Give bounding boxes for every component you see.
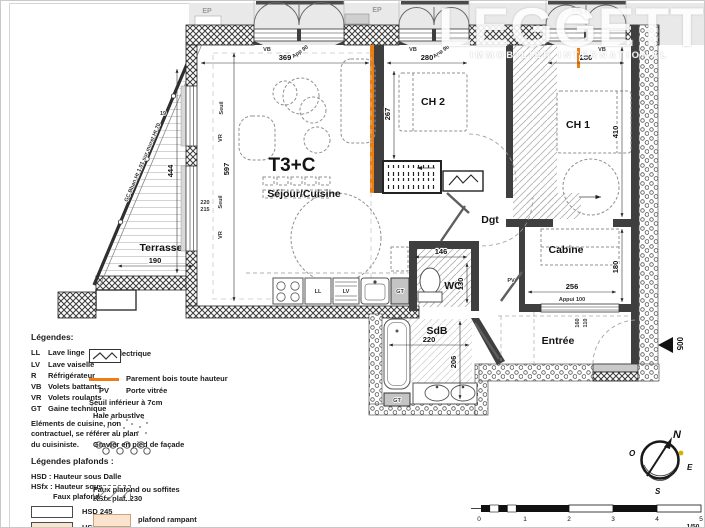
legend-item-lv: LVLave vaiselle bbox=[31, 359, 287, 370]
ep-box bbox=[345, 14, 369, 24]
lv-label: LV bbox=[343, 289, 350, 295]
hsd245-swatch bbox=[31, 506, 73, 518]
scale-tick: 2 bbox=[567, 516, 571, 523]
legend-rampant: plafond rampant bbox=[93, 514, 197, 527]
dim-sill-c: 19 bbox=[160, 111, 166, 117]
hsd243-swatch bbox=[31, 522, 73, 528]
vb-label: VB bbox=[598, 47, 606, 53]
pv-label: PV bbox=[507, 278, 515, 284]
ep-box bbox=[563, 14, 589, 24]
faux-plafond-icon bbox=[93, 485, 131, 501]
dim-sdb-h: 206 bbox=[449, 356, 458, 369]
dim-cabine-w: 256 bbox=[566, 282, 579, 291]
scale-tick: 1 bbox=[523, 516, 527, 523]
legend-item-ll: LLLave linge bbox=[31, 347, 287, 358]
dim-ch2-w: 280 bbox=[421, 53, 434, 62]
window-sejour-west-1 bbox=[181, 86, 197, 146]
unit-number: 005 bbox=[675, 337, 684, 351]
floor-plan-page: EP EP EP GC Bban Ht 1.01 sur muret Ht 70… bbox=[0, 0, 705, 528]
legend-plafonds-title: Légendes plafonds : bbox=[31, 456, 287, 467]
legend-coffret: Coffret électrique bbox=[89, 349, 151, 359]
legend-seuil: Seuil inférieur à 7cm bbox=[89, 398, 162, 408]
ll-label: LL bbox=[315, 289, 322, 295]
dim-ch2-h: 267 bbox=[383, 108, 392, 121]
ep-label: EP bbox=[372, 7, 382, 14]
dim-wc-w: 146 bbox=[435, 247, 448, 256]
legend-faux-plafond: Faux plafond ou soffites HSfx plaf. 230 bbox=[93, 485, 180, 504]
room-label-wc: WC bbox=[444, 280, 462, 292]
toilet bbox=[420, 268, 440, 294]
coffret-icon bbox=[89, 349, 121, 363]
parement-icon bbox=[89, 378, 119, 381]
gt-label: GT bbox=[396, 289, 404, 295]
legend-parement: Parement bois toute hauteur bbox=[89, 374, 228, 384]
legend-gravier: Gravier en pied de façade bbox=[93, 440, 184, 450]
dim-ch1-h: 410 bbox=[611, 126, 620, 139]
gravier-icon bbox=[93, 440, 151, 457]
window-cabine-south bbox=[525, 304, 631, 312]
gt-label: GT bbox=[393, 398, 401, 404]
scale-tick: 0 bbox=[477, 516, 481, 523]
legend-title: Légendes: bbox=[31, 332, 287, 343]
compass-o: O bbox=[629, 449, 636, 458]
compass-s: S bbox=[655, 487, 661, 496]
scale-bar: 0 1 2 3 4 5 1/50 bbox=[471, 505, 703, 528]
compass-n: N bbox=[673, 429, 682, 441]
dim-sejour-h: 597 bbox=[222, 163, 231, 176]
dim-cabine-h: 180 bbox=[611, 261, 620, 274]
app90-label: App 90 bbox=[432, 44, 450, 59]
dim-sill-b: 215 bbox=[200, 207, 209, 213]
app90-label: App 90 bbox=[291, 44, 309, 59]
dim-sill-a: 220 bbox=[200, 200, 209, 206]
compass-e: E bbox=[687, 463, 693, 472]
room-label-ch1: CH 1 bbox=[566, 119, 590, 131]
vr-label: VR bbox=[218, 134, 224, 142]
window-sejour-west-2 bbox=[181, 166, 197, 251]
unit-type-label: T3+C bbox=[269, 155, 316, 176]
scale-tick: 4 bbox=[655, 516, 659, 523]
dim-entree-a: 160 bbox=[575, 318, 581, 327]
unit-marker: 005 bbox=[658, 337, 684, 353]
legend-pv: PV Porte vitrée bbox=[99, 386, 167, 396]
seuil-label: Seuil bbox=[219, 101, 225, 115]
scale-tick: 3 bbox=[611, 516, 615, 523]
coffret-electrique-symbol bbox=[443, 171, 483, 213]
room-label-entree: Entrée bbox=[542, 335, 575, 347]
seuil-label: Seuil bbox=[218, 195, 224, 209]
ep-label: EP bbox=[202, 8, 212, 15]
compass-rose: N O E S bbox=[629, 429, 693, 496]
room-label-dgt: Dgt bbox=[481, 214, 499, 226]
compass-east-dot bbox=[679, 451, 684, 456]
legend-haie: Haie arbustive bbox=[93, 411, 144, 421]
room-label-cabine: Cabine bbox=[548, 244, 583, 256]
dim-cabine-appui: Appui 100 bbox=[559, 297, 585, 303]
dim-ch1-w: 280 bbox=[580, 53, 593, 62]
dim-sejour-w: 369 bbox=[279, 53, 292, 62]
ch2-closet bbox=[383, 161, 441, 193]
vb-label: VB bbox=[263, 47, 271, 53]
room-label-sejour: Séjour/Cuisine bbox=[267, 188, 341, 200]
legend-panel: Légendes: LLLave linge LVLave vaiselle R… bbox=[31, 332, 287, 528]
dim-terrasse-h: 444 bbox=[166, 164, 175, 177]
scale-tick: 5 bbox=[699, 516, 703, 523]
room-label-ch2: CH 2 bbox=[421, 96, 445, 108]
room-label-sdb: SdB bbox=[427, 325, 448, 337]
dim-entree-b: 110 bbox=[583, 319, 589, 328]
room-label-terrasse: Terrasse bbox=[139, 242, 182, 254]
ep-box bbox=[195, 16, 221, 26]
ep-label: EP bbox=[571, 7, 581, 14]
haie-icon bbox=[93, 411, 151, 436]
hsd-definition: HSD : Hauteur sous Dalle bbox=[31, 472, 287, 482]
vr-label: VR bbox=[218, 231, 224, 239]
dim-terrasse-w: 190 bbox=[149, 256, 162, 265]
vb-label: VB bbox=[409, 47, 417, 53]
rampant-icon bbox=[93, 514, 131, 527]
scale-ratio: 1/50 bbox=[687, 524, 700, 528]
